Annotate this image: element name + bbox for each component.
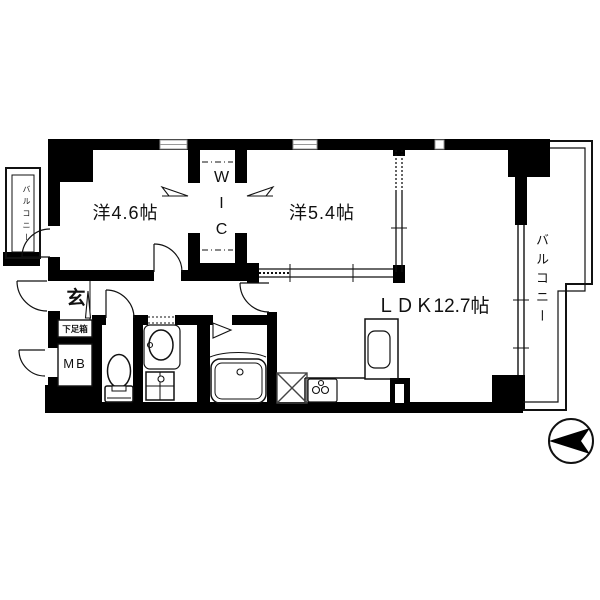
ldk-door <box>240 283 269 312</box>
folding-door-arrow-right-icon <box>247 187 273 196</box>
kitchen-sink-icon <box>368 331 390 368</box>
floor-plan-drawing <box>0 0 600 600</box>
wall-segment <box>515 177 527 225</box>
room-label-balcony-right: バルコニー <box>531 220 551 340</box>
washroom-sliding-door <box>148 317 175 323</box>
wall-segment <box>188 263 247 281</box>
room-label-genkan: 玄 <box>62 283 90 310</box>
floor-plan-page: 洋4.6帖 洋5.4帖 WIC ＬＤＫ12.7帖 玄 下足箱 MB バルコニー … <box>0 0 600 600</box>
wall-segment <box>92 315 102 403</box>
wall-segment <box>48 139 93 182</box>
wall-segment <box>393 265 405 283</box>
room-label-balcony-left: バルコニー <box>14 178 32 252</box>
wall-segment <box>247 263 259 283</box>
appliance-space-icon <box>277 373 307 403</box>
wall-segment <box>92 315 106 325</box>
bathtub-icon <box>210 353 266 404</box>
bathroom-door-icon <box>213 323 231 338</box>
room-label-meter-box: MB <box>58 356 92 371</box>
wall-notch <box>395 384 404 403</box>
room54-ldk-partition-horizontal <box>259 264 393 282</box>
stove-icon <box>308 379 337 402</box>
wall-segment <box>235 148 247 183</box>
wall-segment <box>267 312 277 403</box>
room46-door <box>154 244 182 272</box>
wall-segment <box>175 315 213 325</box>
room-label-west-5-4: 洋5.4帖 <box>257 199 387 225</box>
wall-segment <box>188 148 200 183</box>
wall-segment <box>133 315 148 325</box>
room-label-west-4-6: 洋4.6帖 <box>63 199 188 225</box>
wall-segment <box>48 270 154 281</box>
washer-pan-icon <box>146 372 174 400</box>
wall-segment <box>48 182 60 226</box>
room-label-ldk: ＬＤＫ12.7帖 <box>363 291 503 318</box>
wall-segment <box>133 315 143 403</box>
toilet-door <box>106 290 134 318</box>
wall-segment <box>393 148 405 156</box>
wall-segment <box>508 139 550 177</box>
room-label-wic: WIC <box>208 158 230 258</box>
room-label-shoe-box: 下足箱 <box>58 323 92 335</box>
entrance-door <box>17 281 47 311</box>
washbasin-icon <box>144 325 180 369</box>
wall-segment <box>197 315 210 403</box>
room54-ldk-partition-vertical <box>391 150 407 272</box>
wall-segment <box>492 375 525 410</box>
ldk-window <box>513 225 529 375</box>
toilet-icon <box>105 355 133 403</box>
kitchen-counter-outline <box>365 319 398 379</box>
folding-door-arrow-left-icon <box>162 187 188 196</box>
wall-segment <box>232 315 277 325</box>
meter-box-door <box>19 350 45 376</box>
north-compass-icon <box>549 419 593 463</box>
